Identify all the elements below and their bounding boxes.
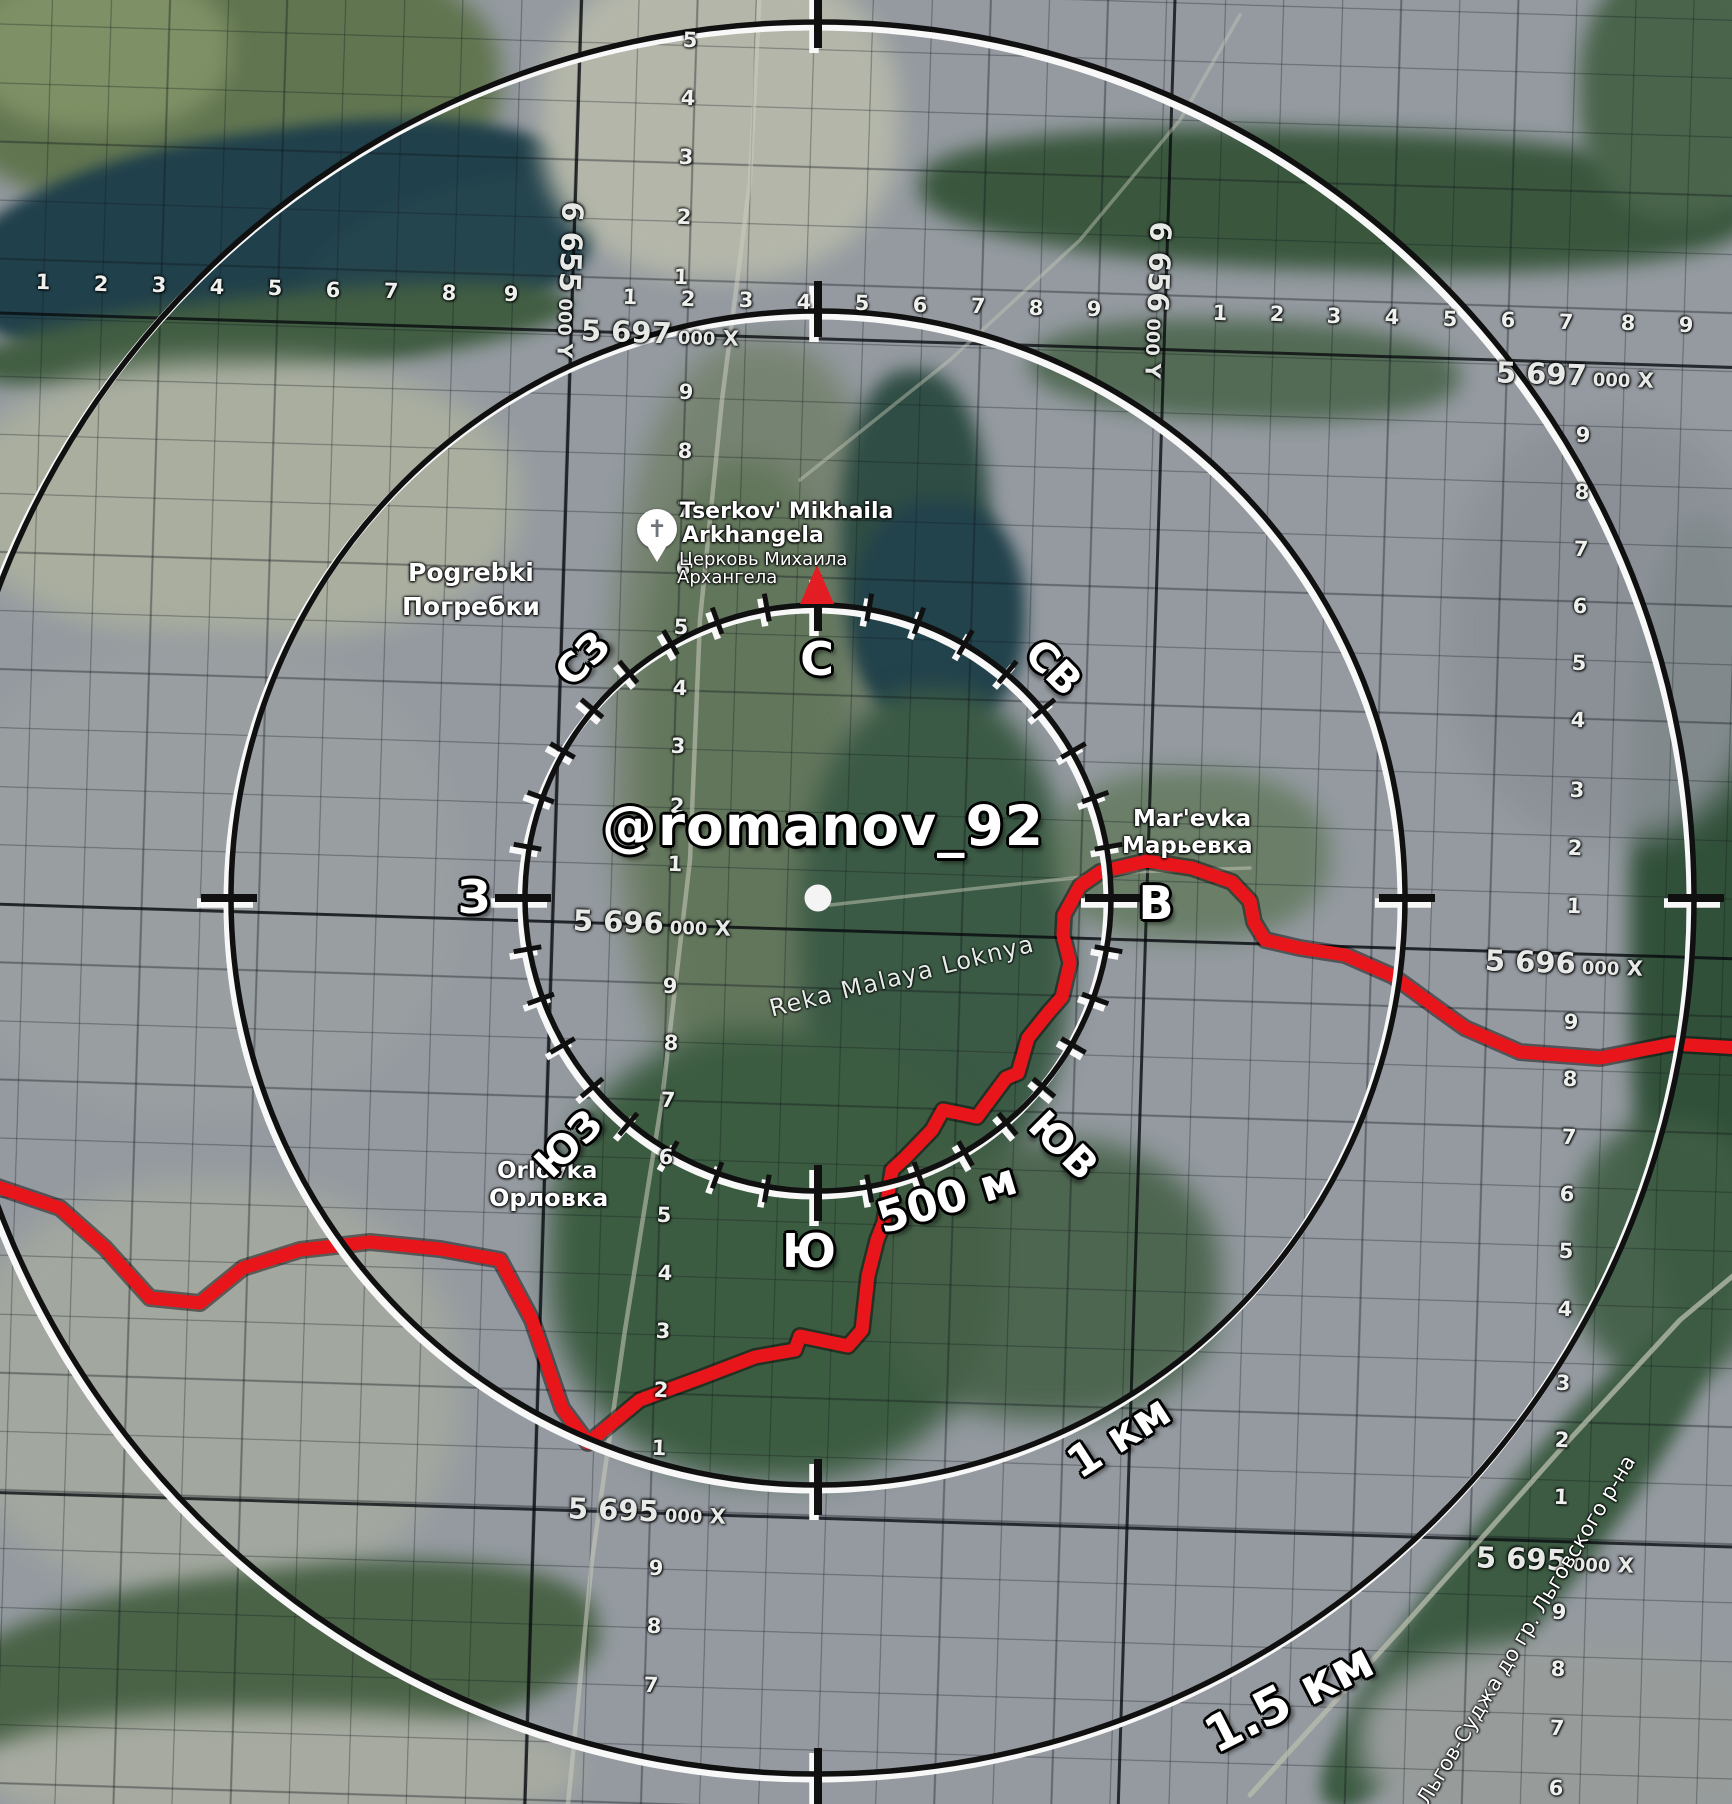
coordinate-label-part: 6 656: [1141, 221, 1178, 313]
coordinate-label-part: X: [1619, 956, 1643, 981]
coordinate-label-part: 000: [1141, 312, 1164, 357]
coordinate-label: 5 696 000 X: [1484, 943, 1643, 982]
grid-digit: 5: [1571, 651, 1586, 675]
grid-digit: 6: [912, 293, 927, 317]
grid-digit: 8: [1620, 311, 1635, 335]
coordinate-label-part: 000: [1586, 369, 1631, 392]
place-label-church-latin-2: Arkhangela: [682, 523, 824, 548]
coordinate-label-part: 6 655: [553, 201, 590, 293]
grid-digit: 3: [151, 273, 166, 297]
grid-digit: 8: [1028, 296, 1043, 320]
grid-digit: 7: [970, 294, 985, 318]
grid-digit: 9: [648, 1556, 663, 1580]
grid-digit: 8: [646, 1614, 661, 1638]
grid-digit: 8: [677, 439, 692, 463]
grid-digit: 1: [1212, 301, 1227, 325]
grid-digit: 3: [670, 734, 685, 758]
coordinate-label-part: X: [707, 916, 731, 941]
coordinate-label-part: Y: [1140, 356, 1165, 379]
map-canvas: 1234567891234567891234567895432198765432…: [0, 0, 1732, 1804]
grid-digit: 6: [1572, 594, 1587, 618]
coordinate-label: 5 697 000 X: [1495, 355, 1654, 394]
grid-digit: 5: [1558, 1239, 1573, 1263]
grid-digit: 2: [680, 287, 695, 311]
coordinate-label-part: 000: [671, 327, 716, 350]
grid-digit: 1: [1553, 1485, 1568, 1509]
place-label-marevka-cyrillic: Марьевка: [1122, 833, 1253, 859]
place-label-marevka-latin: Mar'evka: [1133, 806, 1251, 832]
grid-digit: 3: [1569, 778, 1584, 802]
watermark-label: @romanov_92: [602, 794, 1044, 858]
church-pin-icon: ✝: [637, 509, 677, 549]
grid-digit: 2: [1567, 836, 1582, 860]
grid-digit: 3: [1326, 304, 1341, 328]
grid-digit: 4: [209, 275, 224, 299]
grid-digit: 2: [1269, 302, 1284, 326]
grid-digit: 5: [682, 28, 697, 52]
place-label-church-latin-1: Tserkov' Mikhaila: [680, 499, 893, 524]
grid-digit: 2: [653, 1378, 668, 1402]
grid-digit: 4: [1384, 305, 1399, 329]
grid-digit: 1: [1566, 894, 1581, 918]
grid-digit: 7: [1561, 1125, 1576, 1149]
compass-label-w: З: [458, 870, 491, 924]
grid-digit: 1: [651, 1436, 666, 1460]
grid-digit: 9: [678, 380, 693, 404]
coordinate-label-part: 5 697: [1495, 355, 1587, 392]
place-label-pogrebki-latin: Pogrebki: [408, 558, 534, 587]
coordinate-label-part: 5 697: [580, 313, 672, 350]
grid-digit: 1: [673, 265, 688, 289]
coordinate-label: 5 697 000 X: [580, 313, 739, 352]
coordinate-label-part: X: [715, 326, 739, 351]
grid-digit: 6: [325, 278, 340, 302]
grid-digit: 9: [662, 974, 677, 998]
grid-digit: 4: [1570, 708, 1585, 732]
grid-digit: 8: [441, 281, 456, 305]
coordinate-label-part: X: [1610, 1553, 1634, 1578]
coordinate-label-part: 5 696: [572, 903, 664, 940]
coordinate-label-part: X: [1630, 368, 1654, 393]
coordinate-label: 6 656 000 Y: [1138, 221, 1177, 379]
church-pin-tail: [648, 547, 666, 562]
grid-digit: 9: [1086, 297, 1101, 321]
grid-digit: 4: [796, 290, 811, 314]
grid-digit: 8: [1574, 480, 1589, 504]
coordinate-label-part: 5 695: [567, 1491, 659, 1528]
grid-digit: 3: [678, 145, 693, 169]
grid-digit: 7: [1573, 537, 1588, 561]
coordinate-label-part: 000: [553, 292, 576, 337]
grid-digit: 5: [656, 1203, 671, 1227]
grid-digit: 9: [503, 282, 518, 306]
grid-digit: 3: [1555, 1371, 1570, 1395]
coordinate-label-part: 000: [658, 1505, 703, 1528]
coordinate-label-part: 5 696: [1484, 943, 1576, 980]
grid-digit: 7: [643, 1673, 658, 1697]
place-label-church-cyrillic-2: Архангела: [677, 567, 777, 588]
grid-digit: 8: [663, 1031, 678, 1055]
grid-digit: 3: [738, 288, 753, 312]
place-label-pogrebki-cyrillic: Погребки: [402, 592, 540, 621]
cross-icon: ✝: [647, 515, 667, 543]
grid-digit: 2: [93, 272, 108, 296]
grid-digit: 7: [660, 1088, 675, 1112]
grid-digit: 2: [676, 205, 691, 229]
compass-label-e: В: [1138, 876, 1173, 930]
grid-digit: 4: [672, 676, 687, 700]
grid-digit: 1: [35, 270, 50, 294]
grid-digit: 8: [1562, 1067, 1577, 1091]
compass-label-s: Ю: [782, 1224, 836, 1278]
grid-digit: 2: [1554, 1428, 1569, 1452]
grid-digit: 9: [1678, 313, 1693, 337]
grid-digit: 6: [1500, 308, 1515, 332]
coordinate-label: 5 696 000 X: [572, 903, 731, 942]
coordinate-label-part: Y: [552, 336, 577, 359]
grid-digit: 8: [1550, 1657, 1565, 1681]
grid-digit: 9: [1575, 423, 1590, 447]
grid-digit: 6: [658, 1145, 673, 1169]
grid-digit-layer: 1234567891234567891234567895432198765432…: [0, 0, 1732, 1804]
grid-digit: 1: [622, 285, 637, 309]
grid-digit: 4: [680, 86, 695, 110]
place-label-orlovka-cyrillic: Орловка: [489, 1184, 608, 1212]
grid-digit: 4: [657, 1261, 672, 1285]
grid-digit: 5: [673, 615, 688, 639]
grid-digit: 5: [854, 291, 869, 315]
grid-digit: 6: [1548, 1776, 1563, 1800]
coordinate-label-part: 000: [1575, 957, 1620, 980]
grid-digit: 4: [1557, 1297, 1572, 1321]
compass-label-n: С: [800, 632, 834, 686]
grid-digit: 9: [1563, 1010, 1578, 1034]
grid-digit: 3: [655, 1319, 670, 1343]
grid-digit: 6: [1559, 1182, 1574, 1206]
grid-digit: 7: [1549, 1716, 1564, 1740]
grid-digit: 7: [1558, 310, 1573, 334]
coordinate-label-part: X: [702, 1504, 726, 1529]
coordinate-label: 6 655 000 Y: [550, 201, 589, 359]
grid-digit: 5: [267, 276, 282, 300]
coordinate-label-part: 000: [663, 917, 708, 940]
grid-digit: 5: [1442, 307, 1457, 331]
coordinate-label: 5 695 000 X: [567, 1491, 726, 1530]
grid-digit: 7: [383, 279, 398, 303]
